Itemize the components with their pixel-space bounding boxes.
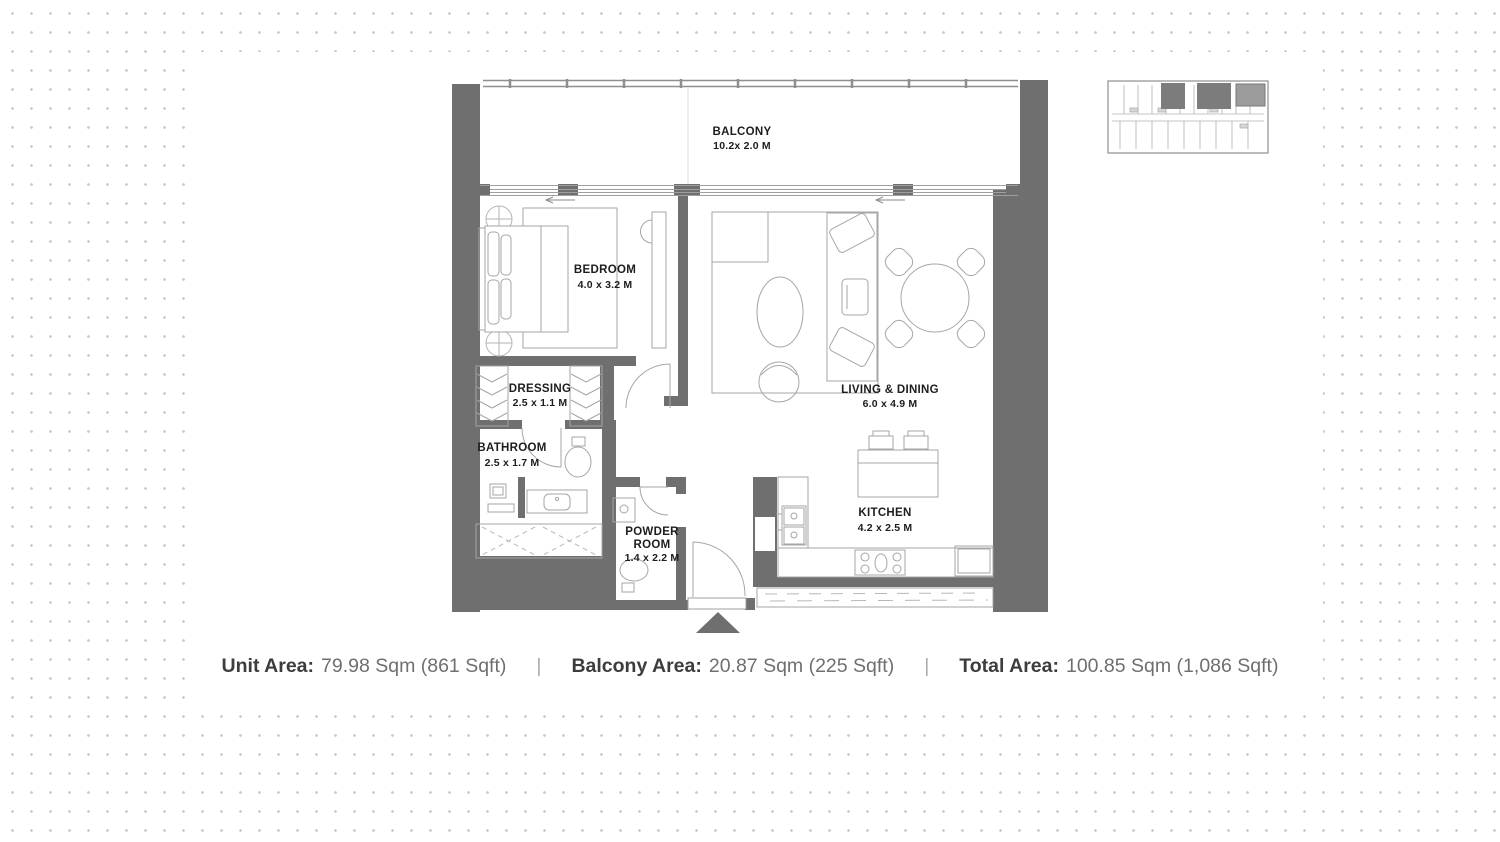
unit-area-label: Unit Area: <box>222 652 314 680</box>
bathroom-label: BATHROOM <box>477 442 546 454</box>
walls <box>452 80 1048 612</box>
balcony-railing <box>483 79 1018 88</box>
toilet-icon <box>565 437 591 477</box>
balcony-label: BALCONY <box>713 126 772 138</box>
separator: | <box>536 652 541 680</box>
key-plan-core <box>1161 83 1185 109</box>
entrance-arrow-icon <box>696 612 740 633</box>
kitchen-label: KITCHEN <box>858 507 911 519</box>
bedroom-label: BEDROOM <box>574 264 636 276</box>
bedroom-door-arc <box>626 364 670 408</box>
entrance-door <box>688 542 746 609</box>
armchair <box>759 362 799 402</box>
powder-room-dims: 1.4 x 2.2 M <box>625 552 680 564</box>
powder-room-label-2: ROOM <box>634 539 671 551</box>
dressing-label: DRESSING <box>509 383 571 395</box>
sofa <box>827 212 877 381</box>
kitchen-dims: 4.2 x 2.5 M <box>858 522 913 534</box>
powder-sink <box>613 498 635 522</box>
floor-plan-drawing: BALCONY 10.2x 2.0 M BEDROOM 4.0 x 3.2 M … <box>0 0 1500 842</box>
wardrobe-shelves <box>476 366 602 426</box>
bedroom-dims: 4.0 x 3.2 M <box>578 279 633 291</box>
total-area-value: 100.85 Sqm (1,086 Sqft) <box>1066 652 1278 680</box>
balcony-area-label: Balcony Area: <box>571 652 701 680</box>
room-labels: BALCONY 10.2x 2.0 M BEDROOM 4.0 x 3.2 M … <box>477 126 939 564</box>
page-background-dots: BALCONY 10.2x 2.0 M BEDROOM 4.0 x 3.2 M … <box>0 0 1500 842</box>
balcony-dims: 10.2x 2.0 M <box>713 140 771 152</box>
key-plan-unit-highlight <box>1236 84 1265 106</box>
dining-table-set <box>882 245 988 351</box>
living-dining-label: LIVING & DINING <box>841 384 939 396</box>
kitchen-island <box>858 431 938 497</box>
bedroom-tv-console <box>641 212 667 348</box>
kitchen-bottom-counter <box>778 546 993 577</box>
unit-area-value: 79.98 Sqm (861 Sqft) <box>321 652 506 680</box>
balcony-area-value: 20.87 Sqm (225 Sqft) <box>709 652 894 680</box>
bathroom-dims: 2.5 x 1.7 M <box>485 457 540 469</box>
service-ledge <box>757 588 993 607</box>
bed <box>479 226 568 332</box>
kitchen-sink-counter <box>776 477 808 548</box>
area-summary: Unit Area: 79.98 Sqm (861 Sqft) | Balcon… <box>0 652 1500 680</box>
total-area-label: Total Area: <box>959 652 1059 680</box>
unit-area: Unit Area: 79.98 Sqm (861 Sqft) <box>222 652 507 680</box>
living-dining-dims: 6.0 x 4.9 M <box>863 398 918 410</box>
shower-drain-icon <box>490 484 506 498</box>
powder-door-arc <box>640 487 668 515</box>
balcony-area: Balcony Area: 20.87 Sqm (225 Sqft) <box>571 652 894 680</box>
linen-box <box>476 524 602 558</box>
separator: | <box>924 652 929 680</box>
key-plan-core <box>1197 83 1231 109</box>
key-plan <box>1108 81 1268 153</box>
powder-room-label-1: POWDER <box>625 526 679 538</box>
total-area: Total Area: 100.85 Sqm (1,086 Sqft) <box>959 652 1278 680</box>
kitchen-wall-opening <box>755 517 775 551</box>
dressing-dims: 2.5 x 1.1 M <box>513 397 568 409</box>
coffee-table <box>757 277 803 347</box>
living-rug <box>712 212 878 393</box>
